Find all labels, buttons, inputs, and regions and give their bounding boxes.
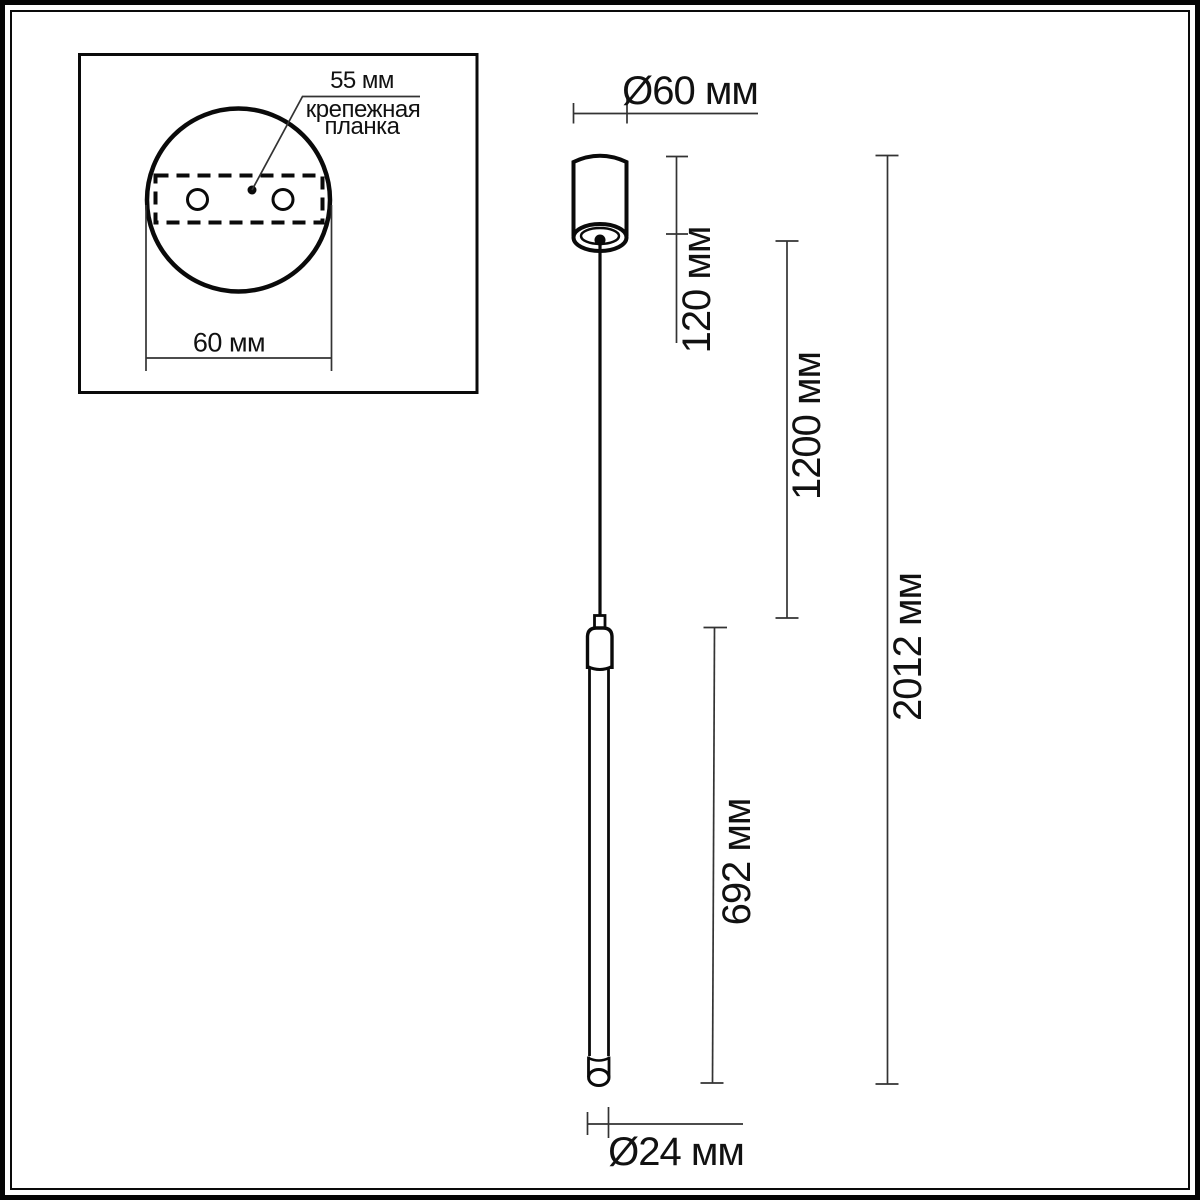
mount-hole-right — [273, 190, 293, 210]
tube-length-label: 692 мм — [717, 799, 757, 926]
inset-offset-label: 55 мм — [330, 69, 394, 93]
suspension-length-label: 1200 мм — [787, 352, 827, 500]
mount-hole-left — [188, 190, 208, 210]
pendant-side-view — [574, 156, 627, 1086]
tube-endcap-top-arc — [589, 1058, 610, 1061]
canopy-outline-circle — [147, 109, 330, 292]
dimension-lines — [573, 96, 899, 1139]
tube-holder — [588, 628, 613, 669]
tube-endcap-bottom-ellipse — [589, 1070, 609, 1086]
mounting-plate-dashed — [156, 176, 323, 223]
canopy-height-label: 120 мм — [677, 227, 717, 354]
inset-part-name-line2: планка — [325, 115, 400, 139]
tube-diameter-label: Ø24 мм — [608, 1132, 744, 1172]
technical-drawing-page: 55 мм крепежная планка 60 мм Ø60 мм 120 … — [0, 0, 1200, 1200]
pendant-lamp-dimension-drawing — [0, 0, 1200, 1200]
inset-width-label: 60 мм — [193, 330, 265, 357]
cable-connector-nub — [595, 616, 606, 629]
total-height-label: 2012 мм — [888, 573, 928, 721]
canopy-diameter-label: Ø60 мм — [622, 71, 758, 111]
